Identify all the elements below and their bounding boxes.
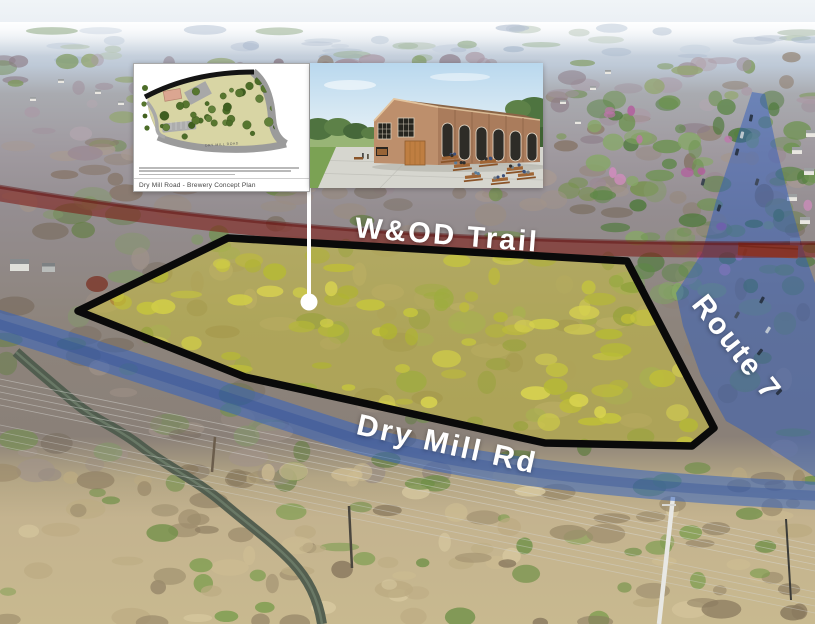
brewery-rendering bbox=[310, 63, 543, 188]
plan-disclaimer-lines bbox=[139, 167, 304, 177]
plan-caption-divider bbox=[134, 178, 309, 179]
annotated-aerial-map: W&OD Trail Dry Mill Rd Route 7 bbox=[0, 0, 815, 624]
concept-plan-drawing: DRY MILL ROAD bbox=[134, 64, 307, 168]
concept-plan-card: DRY MILL ROAD Dry Mill Road - Brewery Co… bbox=[133, 63, 310, 192]
plan-caption: Dry Mill Road - Brewery Concept Plan bbox=[139, 182, 256, 189]
brewery-rendering-card bbox=[310, 63, 543, 188]
